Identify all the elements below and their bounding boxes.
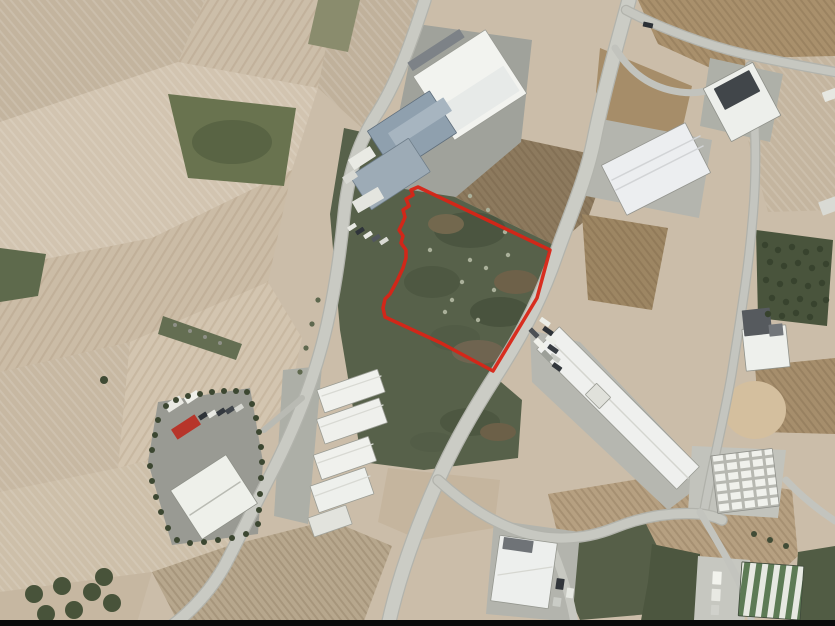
scrub-bottomleft-trees-dot	[65, 601, 83, 619]
hedge-rocks-dot	[188, 329, 192, 333]
vehicle-bottomcenter-2	[566, 588, 574, 599]
scrub-specks-dot	[468, 258, 472, 262]
compound-perimeter-trees-dot	[174, 537, 180, 543]
compound-perimeter-trees-dot	[158, 509, 164, 515]
scrub-brown-3	[428, 214, 464, 234]
van-greenbuilding-2	[711, 589, 721, 601]
roadside-shrubs-left-dot	[315, 297, 320, 302]
hedge-rocks-dot	[218, 341, 222, 345]
compound-perimeter-trees-dot	[221, 388, 227, 394]
vehicle-bottomcenter-3	[552, 597, 561, 607]
orchard-trees-dot	[769, 295, 775, 301]
orchard-trees-dot	[795, 260, 801, 266]
tree-left-field	[100, 376, 108, 384]
satellite-map	[0, 0, 835, 626]
orchard-trees-dot	[809, 265, 815, 271]
orchard-trees-dot	[823, 297, 829, 303]
compound-perimeter-trees-dot	[209, 389, 215, 395]
compound-perimeter-trees-dot	[201, 539, 207, 545]
orchard-trees-dot	[781, 263, 787, 269]
scrub-brown-4	[480, 423, 516, 441]
compound-perimeter-trees-dot	[152, 432, 158, 438]
roadside-shrubs-left-dot	[297, 369, 302, 374]
vehicle-bottomcenter-1	[555, 578, 564, 590]
scrub-bottomleft-trees-dot	[95, 568, 113, 586]
compound-perimeter-trees-dot	[155, 417, 161, 423]
compound-perimeter-trees-dot	[244, 389, 250, 395]
compound-perimeter-trees-dot	[229, 535, 235, 541]
building-rightedge-mid	[768, 323, 783, 336]
roadside-shrubs-left-dot	[303, 345, 308, 350]
compound-perimeter-trees-dot	[153, 494, 159, 500]
compound-perimeter-trees-dot	[253, 415, 259, 421]
compound-perimeter-trees-dot	[255, 521, 261, 527]
orchard-trees-dot	[763, 277, 769, 283]
scrub-dark-2	[404, 266, 460, 298]
orchard-trees-dot	[807, 314, 813, 320]
scrub-specks-dot	[460, 280, 464, 284]
facility-storage-units	[711, 448, 780, 513]
compound-perimeter-trees-dot	[256, 429, 262, 435]
compound-perimeter-trees-dot	[187, 540, 193, 546]
shrubs-facility-dot	[767, 537, 773, 543]
compound-perimeter-trees-dot	[197, 391, 203, 397]
orchard-trees-dot	[762, 242, 768, 248]
orchard-trees-dot	[767, 259, 773, 265]
compound-perimeter-trees-dot	[256, 507, 262, 513]
orchard-trees-dot	[777, 281, 783, 287]
hedge-topleft-dark	[192, 120, 272, 164]
orchard-trees-dot	[823, 261, 829, 267]
scrub-specks-dot	[428, 248, 432, 252]
hedge-rocks-dot	[173, 323, 177, 327]
compound-perimeter-trees-dot	[165, 525, 171, 531]
compound-perimeter-trees-dot	[147, 463, 153, 469]
scrub-specks-dot	[476, 318, 480, 322]
satellite-image	[0, 0, 835, 626]
compound-perimeter-trees-dot	[258, 475, 264, 481]
compound-perimeter-trees-dot	[163, 403, 169, 409]
compound-perimeter-trees-dot	[149, 447, 155, 453]
orchard-trees-dot	[791, 278, 797, 284]
roadside-shrubs-left-dot	[309, 321, 314, 326]
orchard-trees-dot	[765, 311, 771, 317]
scrub-specks-dot	[443, 310, 447, 314]
scrub-bottomleft-trees-dot	[25, 585, 43, 603]
scrub-specks-dot	[486, 208, 490, 212]
map-scene	[0, 0, 835, 626]
compound-perimeter-trees-dot	[233, 388, 239, 394]
tree-left-field-dot	[100, 376, 108, 384]
orchard-trees-dot	[793, 310, 799, 316]
orchard-trees-dot	[803, 249, 809, 255]
orchard-trees-dot	[789, 244, 795, 250]
scrub-specks-dot	[492, 288, 496, 292]
scrub-specks-dot	[506, 253, 510, 257]
shrubs-facility-dot	[751, 531, 757, 537]
scrub-specks-dot	[468, 194, 472, 198]
orchard-trees-dot	[779, 313, 785, 319]
scrub-bottomleft-trees-dot	[103, 594, 121, 612]
scrub-bottomleft-trees-dot	[53, 577, 71, 595]
compound-perimeter-trees-dot	[249, 401, 255, 407]
van-greenbuilding-1	[712, 571, 722, 584]
compound-perimeter-trees-dot	[258, 444, 264, 450]
orchard-trees-dot	[797, 296, 803, 302]
compound-perimeter-trees-dot	[215, 537, 221, 543]
compound-perimeter-trees-dot	[257, 491, 263, 497]
orchard-trees-dot	[775, 247, 781, 253]
orchard-trees-dot	[811, 301, 817, 307]
shrubs-facility-dot	[783, 543, 789, 549]
compound-perimeter-trees-dot	[149, 478, 155, 484]
letterbox-bottom	[0, 620, 835, 626]
scrub-specks-dot	[484, 266, 488, 270]
scrub-specks-dot	[450, 298, 454, 302]
compound-perimeter-trees-dot	[185, 393, 191, 399]
orchard-trees-dot	[819, 280, 825, 286]
compound-perimeter-trees-dot	[259, 459, 265, 465]
scrub-brown-1	[494, 270, 538, 294]
orchard-trees-dot	[783, 299, 789, 305]
compound-perimeter-trees-dot	[173, 397, 179, 403]
building-green-roof	[738, 562, 804, 620]
hedge-rocks-dot	[203, 335, 207, 339]
orchard-trees-dot	[805, 283, 811, 289]
compound-perimeter-trees-dot	[243, 531, 249, 537]
scrub-bottomleft-trees-dot	[83, 583, 101, 601]
orchard-trees-dot	[817, 246, 823, 252]
van-greenbuilding-3	[711, 605, 720, 615]
